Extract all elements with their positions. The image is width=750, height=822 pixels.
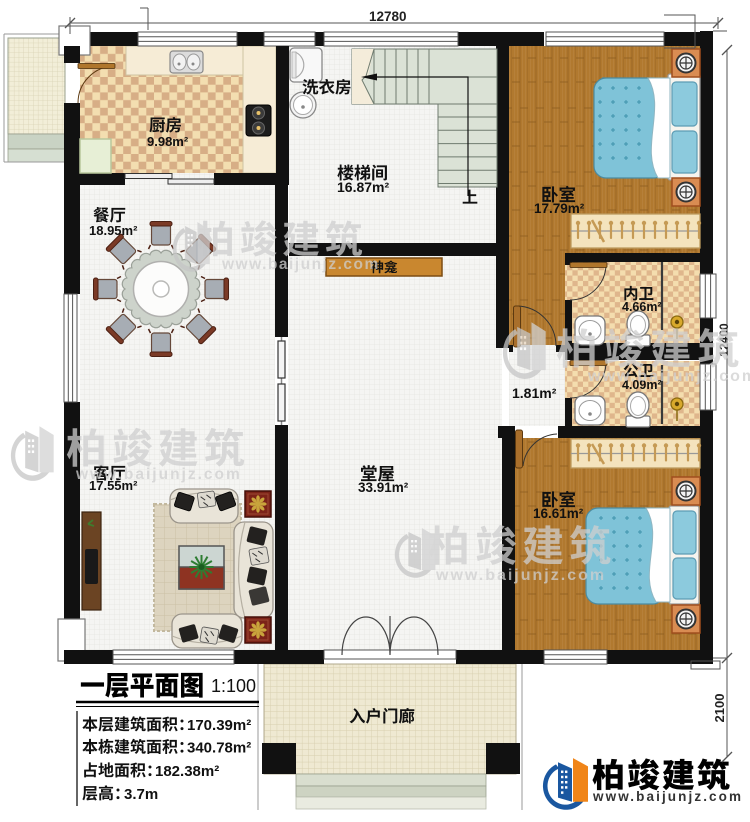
svg-text:33.91m²: 33.91m² [358, 480, 409, 495]
svg-text:www.baijunjz.com: www.baijunjz.com [221, 256, 380, 273]
svg-text:www.baijunjz.com: www.baijunjz.com [75, 466, 242, 483]
svg-text:16.87m²: 16.87m² [337, 179, 389, 195]
svg-text:3.7m: 3.7m [124, 786, 158, 803]
svg-text:12780: 12780 [369, 9, 407, 24]
svg-text:4.66m²: 4.66m² [622, 300, 662, 314]
svg-text:17.79m²: 17.79m² [534, 201, 585, 216]
svg-text:182.38m²: 182.38m² [155, 763, 219, 780]
svg-text:www.baijunjz.com: www.baijunjz.com [435, 567, 606, 584]
svg-text:18.95m²: 18.95m² [89, 223, 138, 238]
svg-text:1.81m²: 1.81m² [512, 385, 557, 401]
svg-text:9.98m²: 9.98m² [147, 134, 189, 149]
svg-text:2100: 2100 [712, 694, 727, 723]
svg-text:www.baijunjz.com: www.baijunjz.com [587, 368, 750, 385]
svg-text:1:100: 1:100 [211, 676, 256, 696]
svg-text:16.61m²: 16.61m² [533, 506, 584, 521]
svg-text:www.baijunjz.com: www.baijunjz.com [592, 789, 743, 804]
svg-text:340.78m²: 340.78m² [187, 740, 251, 757]
svg-text:170.39m²: 170.39m² [187, 717, 251, 734]
